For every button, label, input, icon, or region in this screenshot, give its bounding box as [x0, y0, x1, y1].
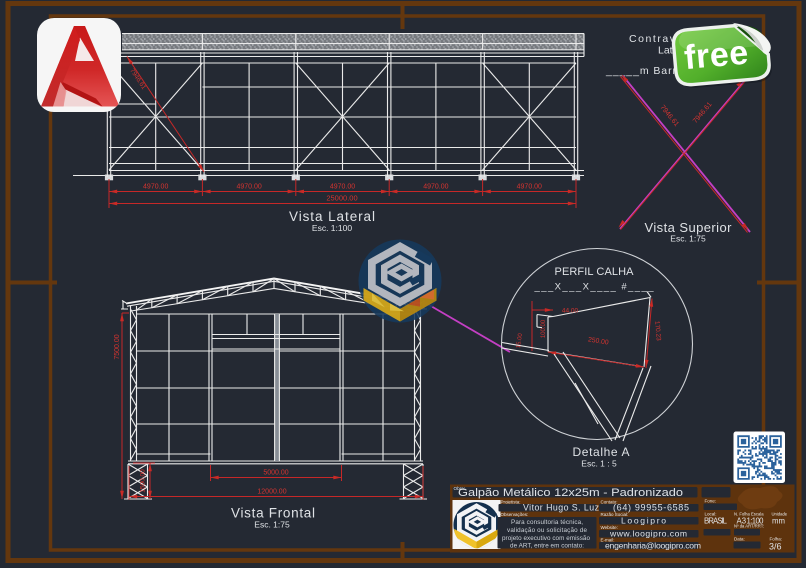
- svg-text:12000.00: 12000.00: [257, 489, 286, 496]
- svg-text:100.00: 100.00: [541, 319, 547, 338]
- svg-text:Para consultoria técnica,: Para consultoria técnica,: [511, 519, 583, 526]
- svg-text:validação ou solicitação de: validação ou solicitação de: [507, 527, 587, 534]
- svg-text:Fone:: Fone:: [705, 499, 717, 504]
- svg-text:Observações:: Observações:: [501, 512, 529, 517]
- svg-text:Esc. 1 : 5: Esc. 1 : 5: [581, 459, 617, 469]
- svg-text:Detalhe A: Detalhe A: [573, 445, 630, 459]
- svg-text:_____m Barr: _____m Barr: [605, 65, 677, 77]
- svg-text:www.loogipro.com: www.loogipro.com: [609, 529, 687, 539]
- svg-text:4970.00: 4970.00: [330, 184, 355, 191]
- svg-text:7500.00: 7500.00: [114, 334, 121, 359]
- svg-text:Esc. 1:100: Esc. 1:100: [312, 223, 352, 233]
- svg-text:4970.00: 4970.00: [236, 184, 261, 191]
- svg-text:Loogipro: Loogipro: [621, 516, 666, 526]
- svg-text:4970.00: 4970.00: [423, 184, 448, 191]
- svg-text:mm: mm: [772, 517, 785, 526]
- svg-text:3/6: 3/6: [769, 542, 782, 552]
- svg-text:BRASIL: BRASIL: [704, 517, 728, 526]
- svg-text:Esc. 1:75: Esc. 1:75: [254, 520, 290, 530]
- svg-text:1500.00: 1500.00: [140, 469, 147, 493]
- svg-text:free: free: [683, 34, 750, 77]
- svg-text:engenharia@loogipro.com: engenharia@loogipro.com: [605, 541, 701, 551]
- svg-text:(64) 99955-6585: (64) 99955-6585: [613, 503, 689, 513]
- svg-text:Vitor Hugo S. Luz: Vitor Hugo S. Luz: [523, 503, 599, 513]
- svg-text:4970.00: 4970.00: [143, 184, 168, 191]
- svg-text:PERFIL CALHA: PERFIL CALHA: [555, 266, 635, 278]
- svg-text:Esc. 1:75: Esc. 1:75: [670, 234, 706, 244]
- svg-text:Data:: Data:: [734, 537, 745, 542]
- svg-text:Nº da ART/RRT:: Nº da ART/RRT:: [734, 524, 764, 529]
- svg-text:Vista Frontal: Vista Frontal: [231, 506, 315, 521]
- svg-text:Projetista:: Projetista:: [501, 500, 521, 505]
- svg-text:projeto executivo com emissão: projeto executivo com emissão: [502, 535, 590, 542]
- svg-text:___X___X____ #____: ___X___X____ #____: [534, 282, 655, 293]
- svg-text:4970.00: 4970.00: [517, 184, 542, 191]
- svg-text:5000.00: 5000.00: [263, 470, 288, 477]
- svg-text:Galpão Metálico 12x25m - Padro: Galpão Metálico 12x25m - Padronizado: [458, 487, 683, 499]
- svg-text:Vista Lateral: Vista Lateral: [289, 209, 375, 224]
- svg-text:44.00: 44.00: [562, 308, 579, 315]
- svg-text:de ART, entre em contato:: de ART, entre em contato:: [510, 543, 584, 550]
- svg-text:25000.00: 25000.00: [326, 194, 357, 203]
